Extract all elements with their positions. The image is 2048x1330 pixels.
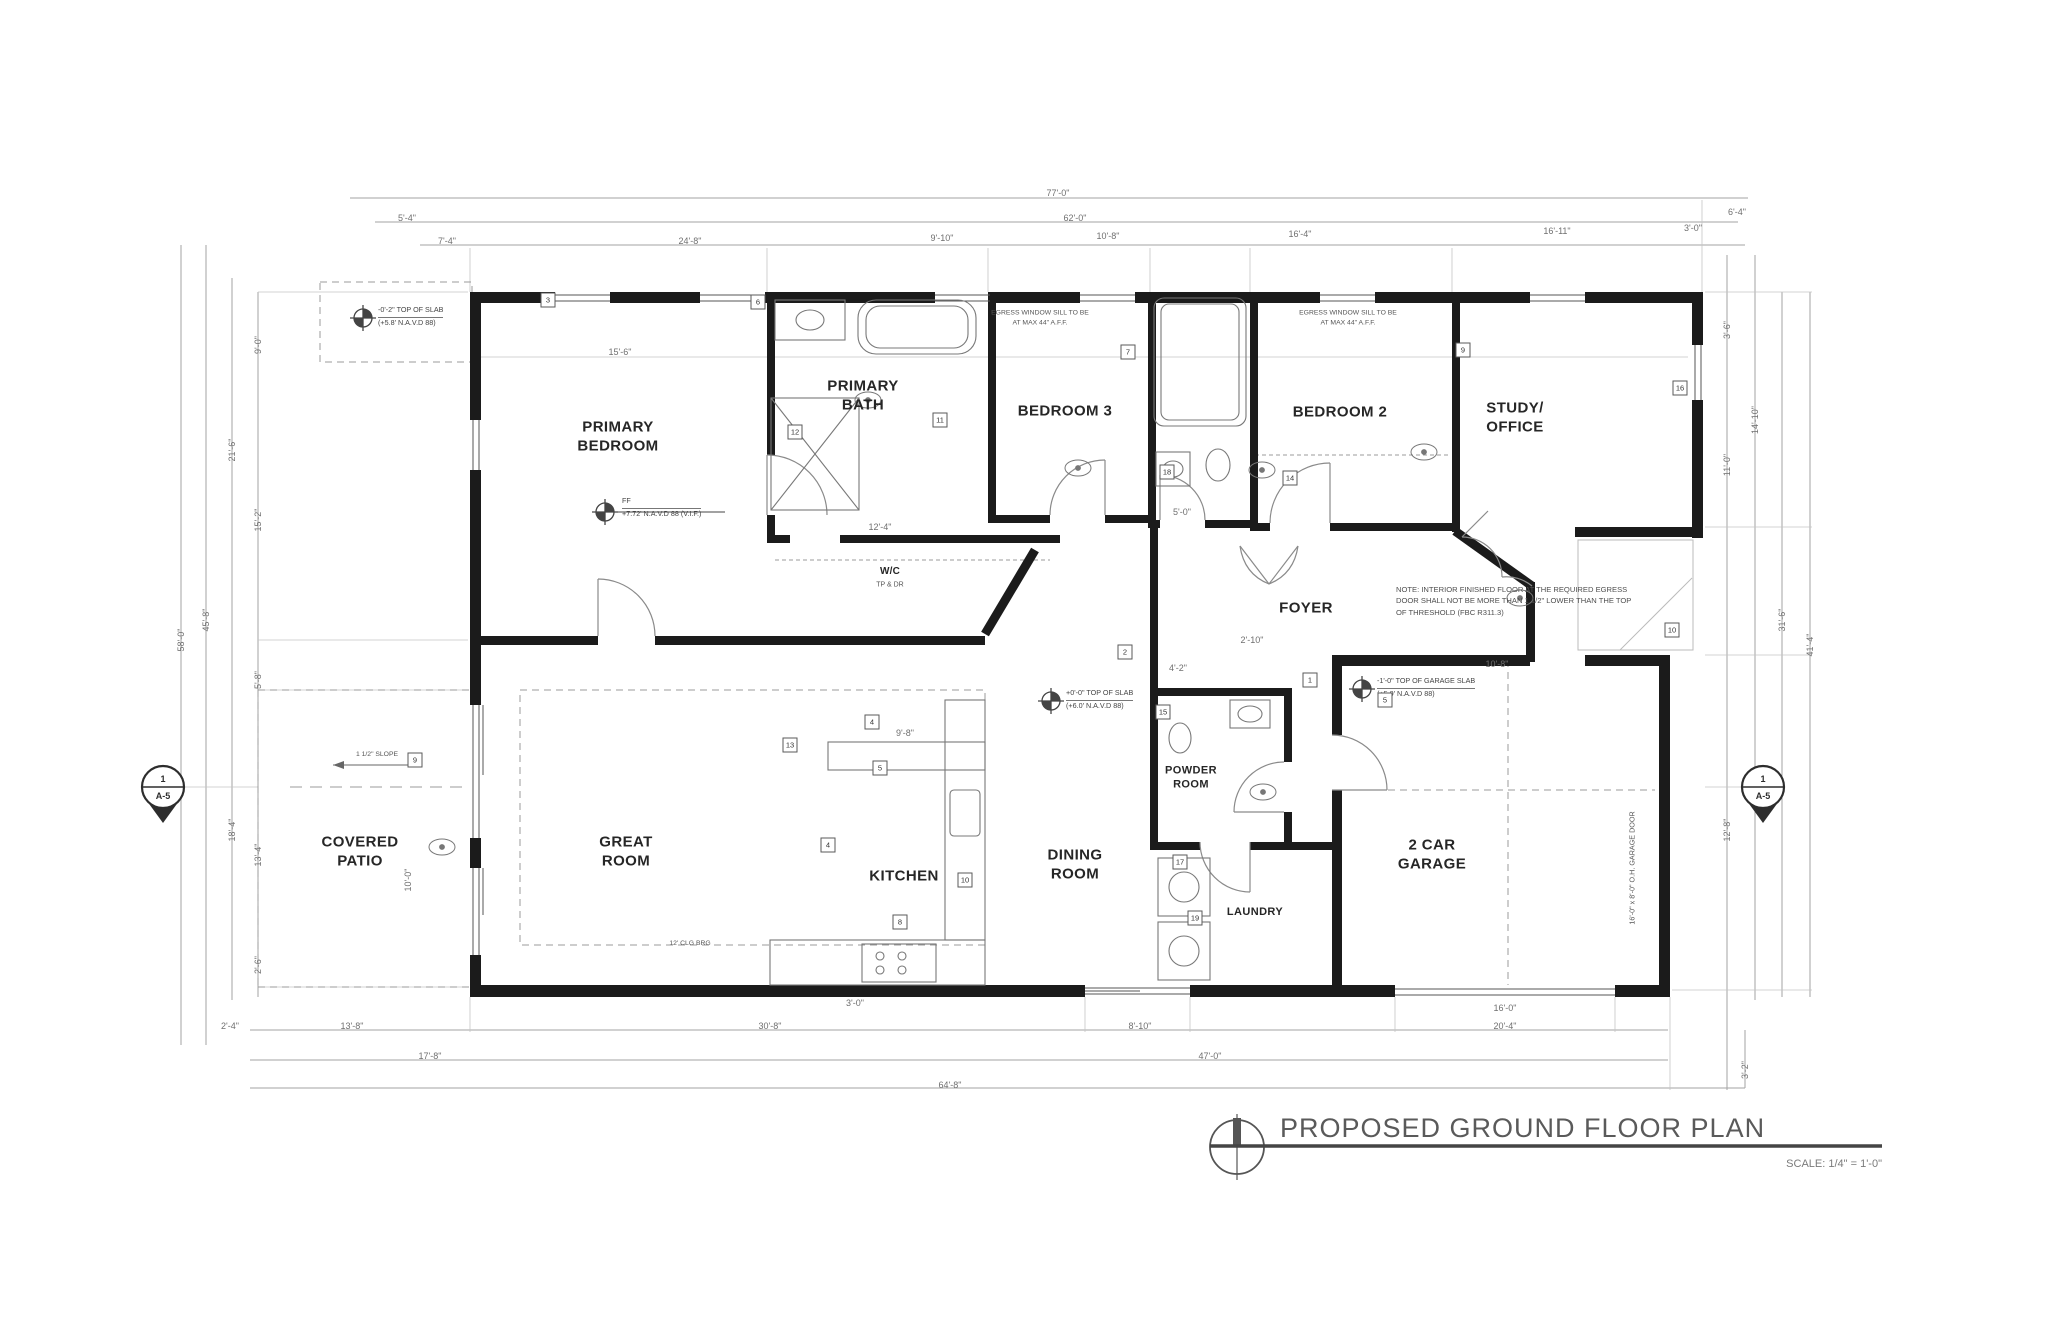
- room-label-bedroom-2: BEDROOM 2: [1293, 404, 1387, 423]
- dimension-label: 62'-0": [1064, 213, 1087, 223]
- room-label-study-office: STUDY/ OFFICE: [1486, 399, 1543, 437]
- floor-plan-sheet: PRIMARY BEDROOM PRIMARY BATH BEDROOM 3 B…: [0, 0, 2048, 1330]
- slab-note-garage-line1: -1'-0" TOP OF GARAGE SLAB: [1377, 676, 1475, 689]
- dimension-label: 9'-0": [253, 336, 263, 354]
- slab-note-patio: -0'-2" TOP OF SLAB (+5.8' N.A.V.D 88): [378, 305, 443, 329]
- garage-door-note: 16'-0" x 8'-0" O.H. GARAGE DOOR: [1628, 811, 1637, 924]
- section-marker-right-sheet: A-5: [1756, 791, 1771, 801]
- dimension-label: 15'-2": [253, 509, 263, 532]
- dimension-label: 10'-8": [1097, 231, 1120, 241]
- keynote-marker: 18: [1160, 465, 1175, 480]
- egress-window-note-1: EGRESS WINDOW SILL TO BE AT MAX 44" A.F.…: [991, 308, 1089, 327]
- dimension-label: 10'-8": [1486, 659, 1509, 669]
- dimension-label: 15'-6": [609, 347, 632, 357]
- dimension-label: 2'-10": [1241, 635, 1264, 645]
- room-label-primary-bath: PRIMARY BATH: [827, 377, 898, 415]
- slab-elevation-symbols: [350, 305, 1375, 714]
- angled-walls: [985, 531, 1532, 634]
- dimension-label: 64'-8": [939, 1080, 962, 1090]
- egress-window-note-2: EGRESS WINDOW SILL TO BE AT MAX 44" A.F.…: [1299, 308, 1397, 327]
- keynote-marker: 9: [1456, 343, 1471, 358]
- dimension-label: 14'-10": [1750, 406, 1760, 434]
- keynote-marker: 5: [1378, 693, 1393, 708]
- dimension-label: 9'-10": [931, 233, 954, 243]
- room-label-powder-room: POWDER ROOM: [1165, 764, 1217, 792]
- keynote-marker: 10: [1665, 623, 1680, 638]
- dimension-label: 13'-4": [253, 844, 263, 867]
- dimension-label: 12'-8": [1722, 819, 1732, 842]
- dimension-label: 7'-4": [438, 236, 456, 246]
- room-label-kitchen: KITCHEN: [869, 868, 938, 887]
- dimension-label: 12'-4": [869, 522, 892, 532]
- keynote-marker: 13: [783, 738, 798, 753]
- dimension-label: 20'-4": [1494, 1021, 1517, 1031]
- dimension-label: 11'-0": [1722, 454, 1732, 476]
- drawing-title: PROPOSED GROUND FLOOR PLAN: [1280, 1113, 1765, 1144]
- dimension-label: 31'-6": [1777, 609, 1787, 632]
- room-label-wc-sub: TP & DR: [876, 582, 904, 589]
- slab-note-main-line1: +0'-0" TOP OF SLAB: [1066, 688, 1133, 701]
- dashed-lines: [258, 282, 1655, 987]
- room-label-laundry: LAUNDRY: [1227, 906, 1283, 920]
- dimension-label: 8'-10": [1129, 1021, 1152, 1031]
- keynote-marker: 16: [1673, 381, 1688, 396]
- dimension-label: 17'-8": [419, 1051, 442, 1061]
- slab-note-main-line2: (+6.0' N.A.V.D 88): [1066, 701, 1133, 712]
- ceiling-fixture-ovals: [429, 392, 1533, 855]
- dimension-label: 13'-8": [341, 1021, 364, 1031]
- dimension-label: 30'-8": [759, 1021, 782, 1031]
- dimension-label: 3'-0": [846, 998, 864, 1008]
- dimension-label: 45'-8": [201, 609, 211, 632]
- threshold-note: NOTE: INTERIOR FINISHED FLOOR AT THE REQ…: [1396, 584, 1636, 618]
- dimension-label: 77'-0": [1047, 188, 1070, 198]
- keynote-marker: 17: [1173, 855, 1188, 870]
- keynote-marker: 19: [1188, 911, 1203, 926]
- keynote-marker: 7: [1121, 345, 1136, 360]
- room-label-covered-patio: COVERED PATIO: [322, 833, 399, 871]
- dimension-label: 3'-0": [1684, 223, 1702, 233]
- room-label-foyer: FOYER: [1279, 600, 1333, 619]
- slab-target-main-icon: [1038, 688, 1064, 714]
- room-label-garage: 2 CAR GARAGE: [1398, 836, 1466, 874]
- keynote-marker: 15: [1156, 705, 1171, 720]
- section-marker-left-number: 1: [160, 774, 165, 784]
- section-marker-right-number: 1: [1760, 774, 1765, 784]
- keynote-marker: 3: [541, 293, 556, 308]
- dimension-label: 58'-0": [176, 629, 186, 652]
- keynote-marker: 9: [408, 753, 423, 768]
- dimension-label: 16'-11": [1543, 226, 1570, 236]
- ff-note-line2: +7.72' N.A.V.D 88 (V.I.F.): [622, 509, 701, 520]
- slope-note: 1 1/2" SLOPE: [356, 750, 398, 760]
- dimension-label: 16'-0": [1494, 1003, 1517, 1013]
- dimension-label: 3'-6": [1722, 321, 1732, 339]
- keynote-marker: 8: [893, 915, 908, 930]
- extension-lines: [184, 200, 1812, 1090]
- dimension-label: 10'-0": [403, 869, 413, 892]
- dimension-label: 21'-6": [227, 439, 237, 462]
- keynote-marker: 4: [865, 715, 880, 730]
- keynote-marker: 12: [788, 425, 803, 440]
- slab-target-garage-icon: [1349, 676, 1375, 702]
- section-marker-left-sheet: A-5: [156, 791, 171, 801]
- dimension-label: 24'-8": [679, 236, 702, 246]
- slab-note-patio-line2: (+5.8' N.A.V.D 88): [378, 318, 443, 329]
- room-label-dining-room: DINING ROOM: [1048, 846, 1103, 884]
- dimension-label: 6'-4": [1728, 207, 1746, 217]
- room-label-bedroom-3: BEDROOM 3: [1018, 403, 1112, 422]
- keynote-marker: 4: [821, 838, 836, 853]
- dimension-label: 5'-8": [253, 671, 263, 689]
- dimension-label: 3'-2": [1740, 1061, 1750, 1079]
- room-label-wc: W/C: [880, 566, 900, 579]
- dimension-label: 41'-4": [1805, 634, 1815, 657]
- slab-target-patio-icon: [350, 305, 376, 331]
- room-label-primary-bedroom: PRIMARY BEDROOM: [577, 418, 658, 456]
- dimension-label: 2'-6": [253, 956, 263, 974]
- dimension-label: 2'-4": [221, 1021, 239, 1031]
- dimension-label: 47'-0": [1199, 1051, 1222, 1061]
- door-swings: [598, 455, 1532, 892]
- slab-note-patio-line1: -0'-2" TOP OF SLAB: [378, 305, 443, 318]
- keynote-marker: 5: [873, 761, 888, 776]
- keynote-marker: 14: [1283, 471, 1298, 486]
- dimension-label: 9'-8": [896, 728, 914, 738]
- room-label-great-room: GREAT ROOM: [599, 833, 652, 871]
- keynote-marker: 2: [1118, 645, 1133, 660]
- keynote-marker: 11: [933, 413, 948, 428]
- ff-note: FF +7.72' N.A.V.D 88 (V.I.F.): [622, 496, 701, 520]
- ceiling-bearing-note: 12' CLG BRG: [669, 939, 710, 949]
- dimension-label: 5'-4": [398, 213, 416, 223]
- drawing-scale: SCALE: 1/4" = 1'-0": [1700, 1158, 1882, 1170]
- dimension-label: 18'-4": [227, 819, 237, 842]
- walls: [470, 292, 1703, 997]
- dimension-label: 5'-0": [1173, 507, 1191, 517]
- dimension-label: 4'-2": [1169, 663, 1187, 673]
- keynote-marker: 10: [958, 873, 973, 888]
- ff-note-line1: FF: [622, 496, 701, 509]
- dimension-label: 16'-4": [1289, 229, 1312, 239]
- slab-note-main: +0'-0" TOP OF SLAB (+6.0' N.A.V.D 88): [1066, 688, 1133, 712]
- keynote-marker: 6: [751, 295, 766, 310]
- keynote-marker: 1: [1303, 673, 1318, 688]
